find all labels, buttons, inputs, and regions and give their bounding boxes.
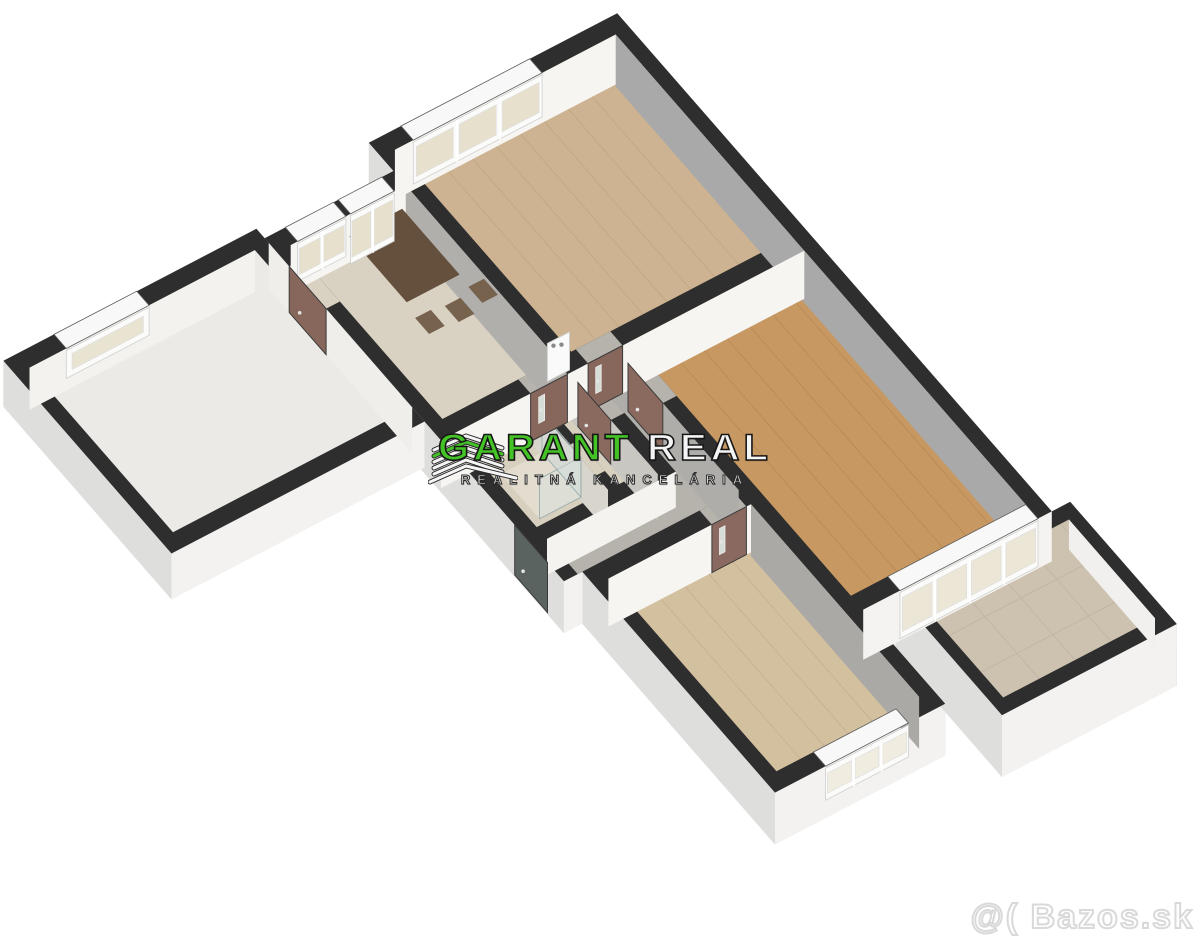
floorplan-screenshot: GARANTREAL REALITNÁ KANCELÁRIA @( Bazos.… bbox=[0, 0, 1200, 939]
floor-plan-3d-render bbox=[0, 0, 1200, 939]
